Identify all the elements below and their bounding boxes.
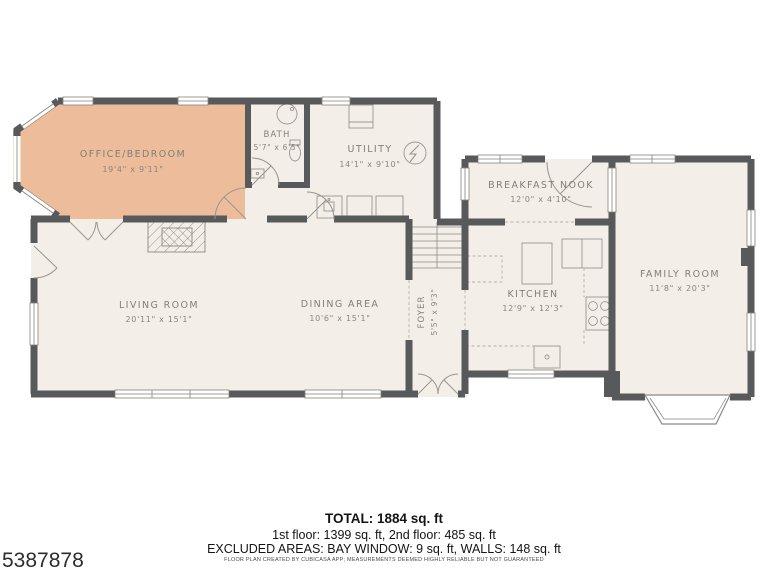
disclaimer-text: FLOOR PLAN CREATED BY CUBICASA APP; MEAS… [0,557,768,563]
window [508,370,554,378]
room-office-bedroom [13,101,250,219]
dims-living: 20'11" x 15'1" [125,315,192,324]
wall-stub-family-right [741,248,751,266]
dims-dining: 10'6" x 15'1" [309,314,370,323]
label-dining: DINING AREA [301,299,380,310]
room-breakfast-nook [462,159,615,225]
floor-plan-drawing: OFFICE/BEDROOM 19'4" x 9'11" BATH 5'7" x… [0,0,768,576]
window [747,313,755,351]
total-area-text: TOTAL: 1884 sq. ft [0,511,768,526]
label-living: LIVING ROOM [119,300,199,311]
label-kitchen: KITCHEN [508,289,559,300]
wall-stub-kitchen-corner [604,371,620,397]
window [747,210,755,246]
label-nook: BREAKFAST NOOK [488,180,594,191]
fireplace-icon [148,222,205,252]
label-foyer: FOYER [417,295,427,328]
window [478,155,522,163]
window [30,303,38,345]
bay-window-family [645,395,730,424]
label-bath: BATH [264,130,291,140]
dims-family: 11'8" x 20'3" [649,284,710,293]
window [115,390,229,398]
window [630,155,675,163]
label-family: FAMILY ROOM [640,269,720,280]
dims-utility: 14'1" x 9'10" [339,160,400,169]
dims-nook: 12'0" x 4'10" [510,195,571,204]
window [608,168,616,212]
window [63,97,93,105]
window [178,97,208,105]
window [305,390,381,398]
dims-office: 19'4" x 9'11" [102,165,163,174]
dims-foyer: 5'5" x 9'3" [430,288,439,335]
dims-kitchen: 12'9" x 12'3" [502,304,563,313]
label-office: OFFICE/BEDROOM [80,149,186,160]
floor-areas-text: 1st floor: 1399 sq. ft, 2nd floor: 485 s… [0,528,768,542]
floor-plan-page: OFFICE/BEDROOM 19'4" x 9'11" BATH 5'7" x… [0,0,768,576]
dims-bath: 5'7" x 6'5" [253,143,300,152]
window [461,168,469,200]
label-utility: UTILITY [347,144,392,155]
window [322,97,350,105]
excluded-areas-text: EXCLUDED AREAS: BAY WINDOW: 9 sq. ft, WA… [0,542,768,556]
listing-id: 5387878 [2,549,84,573]
